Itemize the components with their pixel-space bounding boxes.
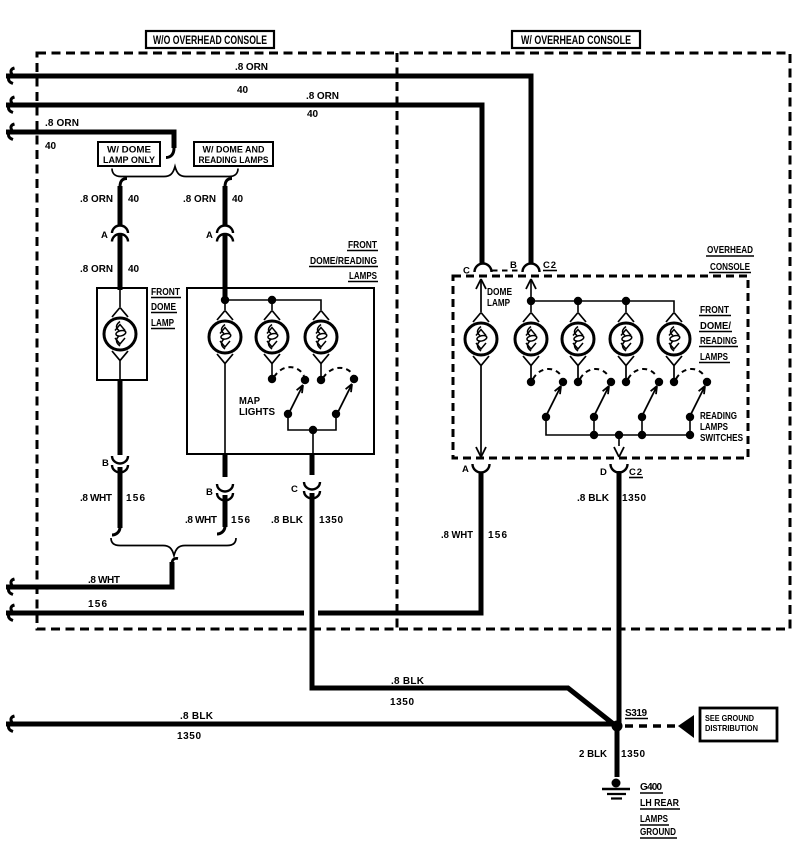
svg-text:.8 BLK: .8 BLK [391, 676, 425, 687]
svg-text:LAMP: LAMP [487, 298, 510, 309]
svg-text:.8 WHT: .8 WHT [441, 530, 473, 541]
svg-text:.8 WHT: .8 WHT [185, 515, 217, 526]
svg-text:156: 156 [231, 515, 250, 526]
svg-text:DOME/: DOME/ [700, 321, 731, 332]
svg-text:MAP: MAP [239, 396, 260, 407]
svg-text:OVERHEAD: OVERHEAD [707, 245, 753, 256]
svg-text:CONSOLE: CONSOLE [710, 262, 750, 273]
svg-text:LH REAR: LH REAR [640, 798, 680, 809]
svg-text:SWITCHES: SWITCHES [700, 433, 743, 444]
svg-text:C2: C2 [543, 260, 556, 271]
svg-text:W/ OVERHEAD CONSOLE: W/ OVERHEAD CONSOLE [521, 35, 631, 47]
svg-text:.8 WHT: .8 WHT [88, 575, 120, 586]
svg-text:.8 ORN: .8 ORN [45, 118, 79, 129]
svg-text:2 BLK: 2 BLK [579, 749, 608, 760]
svg-text:D: D [600, 467, 607, 478]
svg-text:C2: C2 [629, 467, 642, 478]
svg-text:A: A [462, 464, 469, 475]
svg-text:40: 40 [237, 85, 249, 96]
svg-text:G400: G400 [640, 782, 662, 793]
svg-text:1350: 1350 [319, 515, 343, 526]
svg-text:LAMPS: LAMPS [640, 814, 668, 825]
svg-text:LAMP: LAMP [151, 318, 174, 329]
svg-text:READING: READING [700, 336, 737, 347]
svg-text:LAMPS: LAMPS [700, 352, 728, 363]
svg-text:DOME: DOME [151, 302, 176, 313]
svg-text:.8 ORN: .8 ORN [80, 264, 113, 275]
svg-text:LAMPS: LAMPS [700, 422, 728, 433]
svg-text:.8 ORN: .8 ORN [235, 62, 268, 73]
svg-text:DOME/READING: DOME/READING [310, 256, 377, 267]
svg-text:A: A [206, 230, 213, 241]
svg-text:156: 156 [88, 599, 107, 610]
svg-text:S319: S319 [625, 708, 647, 719]
svg-text:40: 40 [45, 141, 57, 152]
svg-text:1350: 1350 [390, 697, 414, 708]
svg-text:SEE GROUND: SEE GROUND [705, 713, 754, 723]
svg-text:1350: 1350 [621, 749, 645, 760]
svg-text:LAMP ONLY: LAMP ONLY [103, 155, 156, 166]
svg-text:FRONT: FRONT [348, 240, 377, 251]
svg-text:B: B [102, 458, 109, 469]
svg-text:.8 BLK: .8 BLK [180, 711, 214, 722]
svg-text:40: 40 [128, 264, 140, 275]
svg-text:.8 ORN: .8 ORN [306, 91, 339, 102]
svg-text:READING: READING [700, 411, 737, 422]
svg-text:40: 40 [128, 194, 140, 205]
svg-text:40: 40 [232, 194, 244, 205]
svg-text:W/ DOME: W/ DOME [107, 145, 151, 156]
svg-text:FRONT: FRONT [151, 287, 180, 298]
svg-text:.8 ORN: .8 ORN [183, 194, 216, 205]
svg-text:B: B [510, 260, 517, 271]
svg-text:.8 BLK: .8 BLK [271, 515, 304, 526]
svg-text:LIGHTS: LIGHTS [239, 407, 275, 418]
svg-text:156: 156 [488, 530, 507, 541]
svg-text:GROUND: GROUND [640, 827, 676, 838]
svg-text:1350: 1350 [622, 493, 646, 504]
svg-text:W/O OVERHEAD CONSOLE: W/O OVERHEAD CONSOLE [153, 35, 267, 47]
svg-text:DOME: DOME [487, 287, 512, 298]
svg-text:.8 ORN: .8 ORN [80, 194, 113, 205]
svg-text:FRONT: FRONT [700, 305, 729, 316]
svg-text:156: 156 [126, 493, 145, 504]
svg-text:LAMPS: LAMPS [349, 271, 377, 282]
svg-text:1350: 1350 [177, 731, 201, 742]
svg-text:40: 40 [307, 109, 319, 120]
svg-text:.8 WHT: .8 WHT [80, 493, 112, 504]
svg-text:C: C [291, 484, 298, 495]
svg-text:DISTRIBUTION: DISTRIBUTION [705, 723, 758, 733]
svg-text:B: B [206, 487, 213, 498]
svg-text:W/ DOME AND: W/ DOME AND [203, 145, 265, 156]
svg-text:.8 BLK: .8 BLK [577, 493, 610, 504]
svg-text:C: C [463, 266, 470, 277]
svg-text:READING LAMPS: READING LAMPS [199, 155, 269, 166]
svg-text:A: A [101, 230, 108, 241]
